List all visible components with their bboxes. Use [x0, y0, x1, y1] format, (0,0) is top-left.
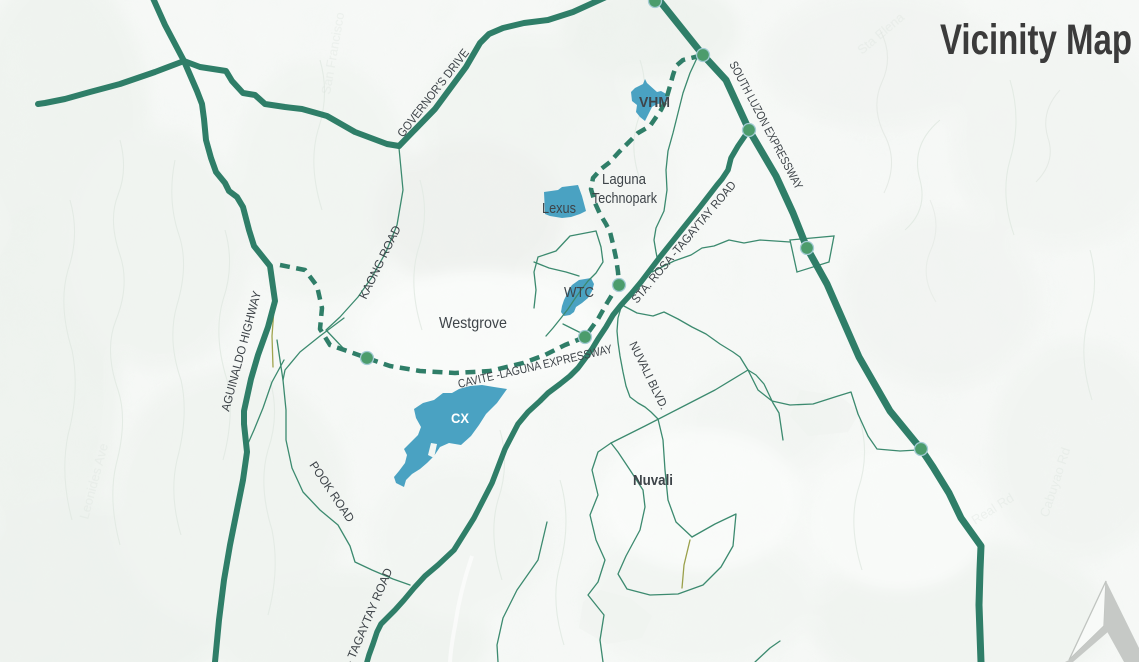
svg-text:Vicinity Map: Vicinity Map: [940, 16, 1132, 64]
svg-text:VHM: VHM: [639, 94, 670, 111]
svg-text:Lexus: Lexus: [542, 200, 576, 217]
svg-text:Technopark: Technopark: [592, 190, 657, 207]
svg-text:WTC: WTC: [564, 284, 594, 301]
svg-text:Laguna: Laguna: [602, 171, 647, 188]
svg-text:Westgrove: Westgrove: [439, 315, 507, 332]
svg-text:CX: CX: [451, 410, 470, 426]
svg-text:Nuvali: Nuvali: [633, 472, 673, 489]
